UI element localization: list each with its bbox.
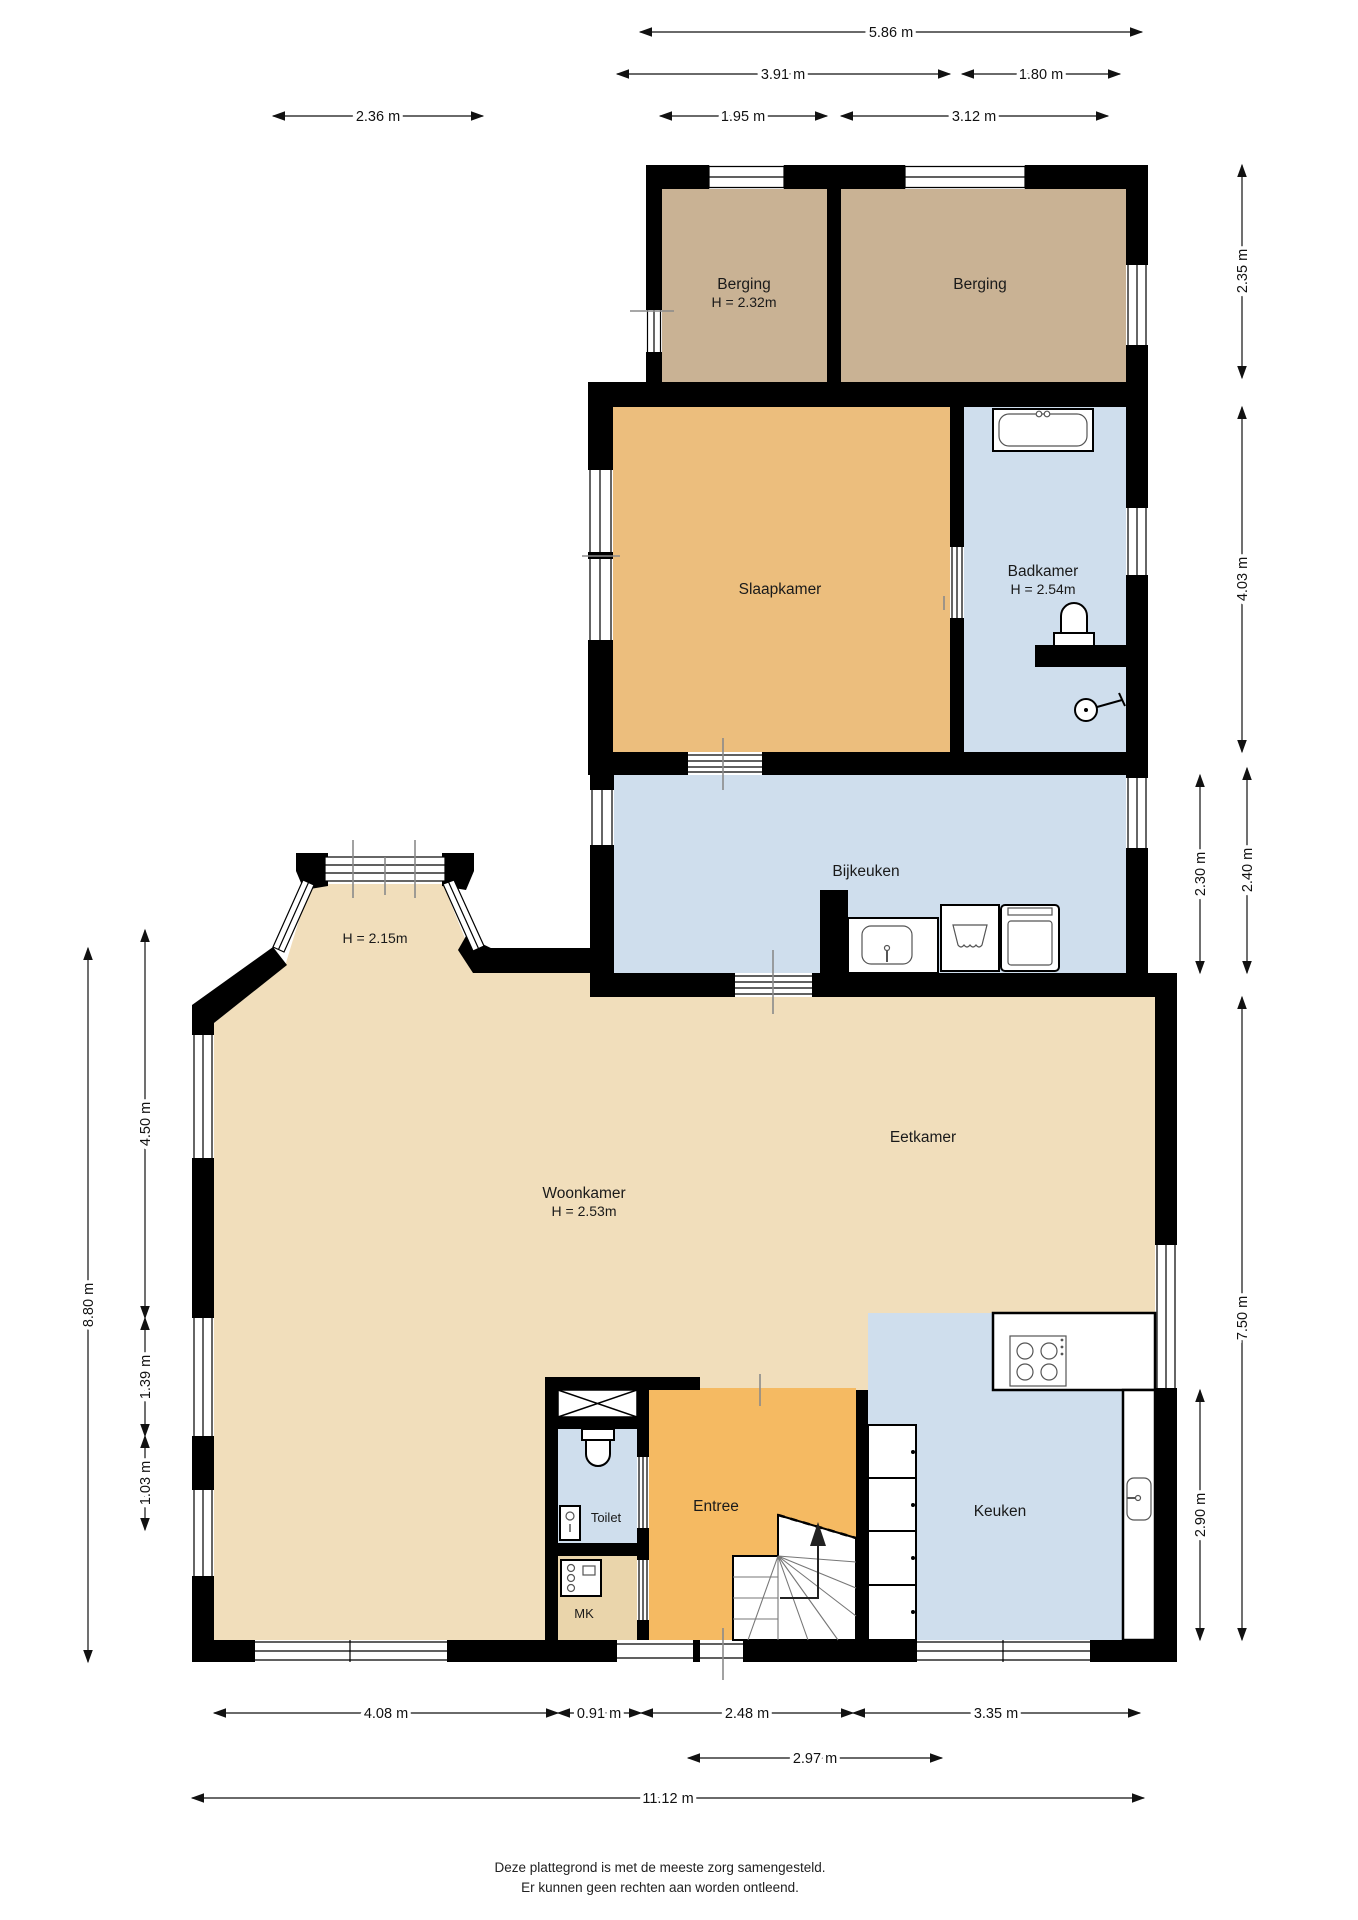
- svg-text:1.03 m: 1.03 m: [138, 1461, 154, 1505]
- kitchen-cabinets: [868, 1425, 916, 1640]
- svg-text:4.50 m: 4.50 m: [138, 1102, 154, 1146]
- svg-text:0.91 m: 0.91 m: [577, 1706, 621, 1722]
- label-badkamer: Badkamer: [1008, 563, 1079, 580]
- svg-text:3.91 m: 3.91 m: [761, 67, 805, 83]
- label-keuken: Keuken: [974, 1503, 1027, 1520]
- label-entree: Entree: [693, 1498, 739, 1515]
- svg-text:8.80 m: 8.80 m: [81, 1283, 97, 1327]
- label-erker-height: H = 2.15m: [343, 930, 408, 946]
- window-bijkeuken-right: [1126, 778, 1148, 848]
- svg-text:1.39 m: 1.39 m: [138, 1355, 154, 1399]
- stove-icon: [1010, 1336, 1066, 1386]
- dim-top-312: 3.12 m: [841, 109, 1108, 125]
- washing-machine-icon: [941, 905, 999, 971]
- dim-top-195: 1.95 m: [660, 109, 827, 125]
- dim-right-235: 2.35 m: [1235, 165, 1251, 378]
- window-berging-left-top: [709, 165, 784, 189]
- svg-text:2.36 m: 2.36 m: [356, 109, 400, 125]
- dim-top-236: 2.36 m: [273, 109, 483, 125]
- svg-text:11.12 m: 11.12 m: [642, 1791, 693, 1807]
- dim-left-880: 8.80 m: [81, 948, 97, 1662]
- window-berging-left-wall: [646, 310, 662, 352]
- sink-icon-keuken: [1127, 1478, 1151, 1520]
- room-slaapkamer-floor: [613, 407, 950, 752]
- window-berging-right-top: [905, 165, 1025, 189]
- label-slaapkamer: Slaapkamer: [739, 581, 822, 598]
- door-slaapkamer-bijkeuken: [688, 752, 762, 775]
- label-berging-right: Berging: [953, 276, 1006, 293]
- label-bijkeuken: Bijkeuken: [832, 863, 899, 880]
- svg-text:4.08 m: 4.08 m: [364, 1706, 408, 1722]
- sink-icon-bijkeuken: [848, 918, 938, 973]
- dim-right-403: 4.03 m: [1235, 407, 1251, 752]
- window-woonkamer-left-2: [192, 1318, 214, 1436]
- dim-bottom-248: 2.48 m: [641, 1706, 853, 1722]
- svg-text:1.95 m: 1.95 m: [721, 109, 765, 125]
- window-bijkeuken-left: [590, 790, 614, 845]
- dim-bottom-1112: 11.12 m: [192, 1791, 1144, 1807]
- dim-left-103: 1.03 m: [138, 1436, 154, 1530]
- dim-top-586: 5.86 m: [640, 25, 1142, 41]
- window-woonkamer-left-1: [192, 1035, 214, 1158]
- svg-text:2.35 m: 2.35 m: [1235, 249, 1251, 293]
- window-woonkamer-left-3: [192, 1490, 214, 1576]
- door-mk: [637, 1560, 649, 1620]
- window-berging-right-wall: [1126, 265, 1148, 345]
- svg-text:2.48 m: 2.48 m: [725, 1706, 769, 1722]
- meter-cabinet-icon: [561, 1560, 601, 1596]
- label-woonkamer-height: H = 2.53m: [552, 1203, 617, 1219]
- shaft: [558, 1390, 637, 1417]
- dim-right-230: 2.30 m: [1193, 775, 1209, 973]
- dim-right-290: 2.90 m: [1193, 1390, 1209, 1640]
- svg-text:7.50 m: 7.50 m: [1235, 1296, 1251, 1340]
- svg-text:4.03 m: 4.03 m: [1235, 557, 1251, 601]
- window-woonkamer-bottom: [255, 1640, 447, 1662]
- dim-bottom-408: 4.08 m: [214, 1706, 558, 1722]
- dim-right-750: 7.50 m: [1235, 997, 1251, 1640]
- floorplan-page: Berging H = 2.32m Berging Slaapkamer Bad…: [0, 0, 1358, 1920]
- door-toilet: [637, 1457, 649, 1528]
- label-berging-left: Berging: [717, 276, 770, 293]
- label-berging-left-height: H = 2.32m: [712, 294, 777, 310]
- label-toilet: Toilet: [591, 1510, 622, 1525]
- dim-top-180: 1.80 m: [962, 67, 1120, 83]
- dim-bottom-091: 0.91 m: [558, 1706, 641, 1722]
- label-woonkamer: Woonkamer: [542, 1185, 625, 1202]
- svg-text:2.40 m: 2.40 m: [1240, 848, 1256, 892]
- front-door: [610, 1640, 750, 1662]
- dim-bottom-297: 2.97 m: [688, 1751, 942, 1767]
- svg-text:2.90 m: 2.90 m: [1193, 1493, 1209, 1537]
- window-eetkamer-right: [1155, 1245, 1177, 1388]
- window-badkamer-right: [1126, 508, 1148, 575]
- window-keuken-bottom: [917, 1640, 1090, 1662]
- dim-left-139: 1.39 m: [138, 1318, 154, 1436]
- svg-text:2.30 m: 2.30 m: [1193, 852, 1209, 896]
- disclaimer-line2: Er kunnen geen rechten aan worden ontlee…: [521, 1880, 799, 1895]
- sink-icon-toiletroom: [560, 1506, 580, 1540]
- label-eetkamer: Eetkamer: [890, 1129, 956, 1146]
- dryer-icon: [1001, 905, 1059, 971]
- dim-right-240: 2.40 m: [1240, 768, 1256, 973]
- floorplan-canvas: Berging H = 2.32m Berging Slaapkamer Bad…: [0, 0, 1358, 1920]
- bathtub-icon: [993, 409, 1093, 451]
- svg-text:5.86 m: 5.86 m: [869, 25, 913, 41]
- label-mk: MK: [574, 1606, 594, 1621]
- bijkeuken-wall-stub: [820, 890, 848, 973]
- window-slaapkamer-left: [588, 470, 613, 640]
- kitchen-counter-top: [993, 1313, 1155, 1390]
- svg-text:3.12 m: 3.12 m: [952, 109, 996, 125]
- dim-left-450: 4.50 m: [138, 930, 154, 1318]
- dim-bottom-335: 3.35 m: [853, 1706, 1140, 1722]
- disclaimer: Deze plattegrond is met de meeste zorg s…: [495, 1860, 826, 1895]
- door-slaapkamer-badkamer: [950, 547, 964, 618]
- svg-text:1.80 m: 1.80 m: [1019, 67, 1063, 83]
- dim-top-391: 3.91 m: [617, 67, 950, 83]
- svg-text:3.35 m: 3.35 m: [974, 1706, 1018, 1722]
- disclaimer-line1: Deze plattegrond is met de meeste zorg s…: [495, 1860, 826, 1875]
- toilet-icon-toiletroom: [582, 1429, 614, 1466]
- kitchen-counter-right: [1123, 1390, 1155, 1640]
- svg-text:2.97 m: 2.97 m: [793, 1751, 837, 1767]
- label-badkamer-height: H = 2.54m: [1011, 581, 1076, 597]
